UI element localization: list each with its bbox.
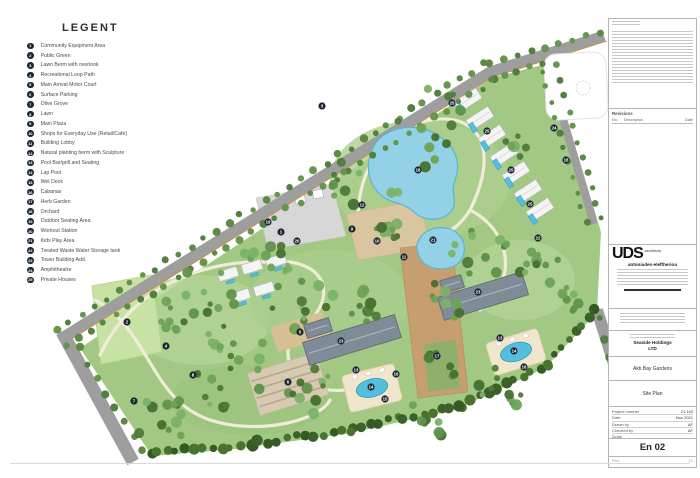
legend-label: Cabanas <box>41 189 62 195</box>
tree <box>456 99 461 104</box>
legend-title: LEGENT <box>62 22 177 34</box>
tree <box>549 100 554 105</box>
tree <box>424 85 432 93</box>
tree <box>532 260 540 268</box>
tree <box>200 258 208 266</box>
tree <box>349 311 355 317</box>
tree <box>494 375 500 381</box>
legend-label: Community Equipment Area <box>41 43 106 49</box>
legend-badge: 24 <box>27 267 34 274</box>
tree <box>201 289 207 295</box>
tree <box>329 180 338 189</box>
tree <box>597 30 604 37</box>
tree <box>395 118 402 125</box>
tree <box>518 392 523 397</box>
tree <box>308 432 318 442</box>
tree <box>500 55 508 63</box>
tree <box>157 420 167 430</box>
tree <box>152 447 161 456</box>
tree <box>440 298 450 308</box>
tree <box>512 68 520 76</box>
plan-marker: 25 <box>526 200 533 207</box>
tree <box>236 441 245 450</box>
legend-badge: 5 <box>27 82 34 89</box>
tree <box>331 193 337 199</box>
plan-marker: 5 <box>296 328 303 335</box>
tree <box>254 366 262 374</box>
tree <box>274 283 282 291</box>
tree <box>297 296 307 306</box>
legend-label: Private Houses <box>41 277 76 283</box>
tree <box>282 204 289 211</box>
tree <box>217 343 224 350</box>
tree <box>272 438 281 447</box>
legend-label: Tower Building Add. <box>41 257 87 263</box>
tree <box>168 305 173 310</box>
tree <box>179 443 189 453</box>
tree <box>529 47 536 54</box>
project-box: Akti Bay Gardens <box>608 356 697 380</box>
tree <box>138 446 146 454</box>
svg-text:25: 25 <box>485 129 490 134</box>
courtyard-garden <box>424 340 460 392</box>
tree <box>383 145 389 151</box>
tree <box>84 362 90 368</box>
tree <box>171 448 178 455</box>
tree <box>110 404 118 412</box>
legend-label: Olive Grove <box>41 101 68 107</box>
field-label: Date <box>612 415 620 420</box>
tree <box>573 298 583 308</box>
tree <box>567 110 573 116</box>
tree <box>240 249 250 259</box>
field-value: 21.140 <box>681 409 693 414</box>
pond <box>417 228 465 269</box>
tree <box>213 228 221 236</box>
tree <box>474 380 485 391</box>
tree <box>509 376 517 384</box>
tree <box>114 312 120 318</box>
tree <box>356 170 363 177</box>
legend-label: Orchard <box>41 209 60 215</box>
tree <box>229 299 239 309</box>
tree <box>357 160 363 166</box>
tree <box>589 304 599 314</box>
revisions-header: No. Description Date <box>612 118 693 124</box>
tree <box>298 278 305 285</box>
tree <box>295 393 305 403</box>
tree <box>349 147 354 152</box>
svg-text:15: 15 <box>383 397 388 402</box>
tree <box>285 265 293 273</box>
legend-item: 25Private Houses <box>27 275 177 285</box>
tree <box>197 443 206 452</box>
legend-item: 1Community Equipment Area <box>27 41 177 51</box>
svg-text:16: 16 <box>394 372 399 377</box>
legend-badge: 16 <box>27 189 34 196</box>
legend-item: 13Pool Bar/grill and Seating <box>27 158 177 168</box>
tree <box>76 343 84 351</box>
tree <box>424 142 434 152</box>
tree <box>234 355 244 365</box>
tree <box>172 325 179 332</box>
tree <box>424 352 435 363</box>
tree <box>124 303 130 309</box>
tree <box>447 120 457 130</box>
plan-marker: 21 <box>429 236 436 243</box>
tree <box>485 59 493 67</box>
print-value: 1:2 <box>688 459 693 465</box>
tree <box>293 431 301 439</box>
revisions-col-no: No. <box>612 118 624 122</box>
tree <box>225 444 232 451</box>
plan-marker: 19 <box>264 218 271 225</box>
svg-text:10: 10 <box>375 239 380 244</box>
tree <box>170 401 177 408</box>
fields-box: Project number21.140DateNov 2021Drawn by… <box>608 406 697 438</box>
tree <box>320 383 326 389</box>
legend-badge: 18 <box>27 208 34 215</box>
svg-text:18: 18 <box>416 168 421 173</box>
tree <box>431 296 438 303</box>
tree <box>331 172 337 178</box>
legend-item: 24Amphitheatre <box>27 265 177 275</box>
legend-item: 3Lawn Berm with overlook <box>27 61 177 71</box>
tree <box>558 344 565 351</box>
field-value: AF <box>688 422 693 427</box>
tree <box>363 318 370 325</box>
legend-item: 12Natural planting berm with Sculpture <box>27 148 177 158</box>
legend-badge: 25 <box>27 277 34 284</box>
plan-marker: 6 <box>284 378 291 385</box>
tree <box>455 105 465 115</box>
tree <box>394 188 403 197</box>
svg-text:12: 12 <box>360 203 365 208</box>
legend-label: Outdoor Seating Area <box>41 218 91 224</box>
legend-badge: 10 <box>27 130 34 137</box>
legend-item: 23Tower Building Add. <box>27 256 177 266</box>
tree <box>121 418 128 425</box>
tree <box>236 236 244 244</box>
legend-label: Shops for Everyday Use (Retail/Cafe) <box>41 131 128 137</box>
tree <box>150 291 158 299</box>
drawing-sheet: 3252525252418181221221110919201248756232… <box>0 0 700 478</box>
tree <box>448 250 456 258</box>
svg-text:25: 25 <box>509 168 514 173</box>
tree <box>265 241 276 252</box>
tree <box>369 152 376 159</box>
tree <box>337 158 346 167</box>
print-row: Print 1:2 <box>608 456 697 468</box>
tree <box>143 398 151 406</box>
svg-text:17: 17 <box>435 354 440 359</box>
tree <box>480 87 485 92</box>
plan-marker: 18 <box>414 166 421 173</box>
tree <box>454 308 464 318</box>
tree <box>313 280 324 291</box>
tree <box>208 338 217 347</box>
tree <box>462 257 473 268</box>
legend-badge: 8 <box>27 111 34 118</box>
tree <box>585 169 592 176</box>
tree <box>468 70 475 77</box>
tree <box>226 219 234 227</box>
legend-item: 14Lap Pool <box>27 168 177 178</box>
tree <box>431 280 439 288</box>
svg-text:23: 23 <box>476 290 481 295</box>
legend-badge: 23 <box>27 257 34 264</box>
tree <box>444 403 454 413</box>
tree <box>443 108 450 115</box>
tree <box>527 248 536 257</box>
tree <box>480 392 486 398</box>
revisions-col-date: Date <box>677 118 693 122</box>
legend-label: Main Arrival Motor Court <box>41 82 97 88</box>
tree <box>523 260 530 267</box>
tree <box>442 139 451 148</box>
plan-marker: 1 <box>277 228 284 235</box>
plan-marker: 25 <box>483 127 490 134</box>
legend-badge: 2 <box>27 52 34 59</box>
tree <box>501 72 508 79</box>
svg-text:21: 21 <box>431 238 436 243</box>
legend-label: Surface Parking <box>41 92 78 98</box>
legend-label: Pool Bar/grill and Seating <box>41 160 100 166</box>
drawing-title: Site Plan <box>642 391 662 397</box>
plan-marker: 14 <box>510 347 517 354</box>
tree <box>517 153 524 160</box>
tree <box>228 366 234 372</box>
tree <box>515 53 521 59</box>
plan-marker: 25 <box>448 99 455 106</box>
tree <box>230 340 237 347</box>
print-label: Print <box>612 459 619 465</box>
tree <box>189 244 196 251</box>
tree <box>248 247 259 258</box>
tree <box>418 99 425 106</box>
tree <box>540 70 545 75</box>
plan-marker: 9 <box>348 225 355 232</box>
plan-marker: 18 <box>562 156 569 163</box>
svg-text:18: 18 <box>564 158 569 163</box>
tree <box>522 144 530 152</box>
legend-item: 9Main Plaza <box>27 119 177 129</box>
legend-list: 1Community Equipment Area2Public Green3L… <box>27 41 177 285</box>
tree <box>208 301 213 306</box>
tree <box>407 104 415 112</box>
svg-text:23: 23 <box>339 339 344 344</box>
plan-marker: 4 <box>162 342 169 349</box>
tree <box>228 353 235 360</box>
plan-marker: 20 <box>293 237 300 244</box>
tree <box>202 394 209 401</box>
svg-text:13: 13 <box>498 336 503 341</box>
tree <box>217 385 223 391</box>
legend-item: 5Main Arrival Motor Court <box>27 80 177 90</box>
tree <box>307 190 313 196</box>
tree <box>383 122 389 128</box>
plan-marker: 23 <box>337 337 344 344</box>
plan-marker: 15 <box>381 395 388 402</box>
legend-label: Natural planting berm with Sculpture <box>41 150 125 156</box>
tree <box>337 426 346 435</box>
tree <box>203 308 212 317</box>
tree <box>465 395 476 406</box>
plan-marker: 12 <box>358 201 365 208</box>
legend-item: 16Cabanas <box>27 187 177 197</box>
tree <box>92 304 98 310</box>
plan-marker: 3 <box>318 102 325 109</box>
tree <box>286 184 293 191</box>
tree <box>200 235 205 240</box>
plan-marker: 23 <box>474 288 481 295</box>
tree <box>222 244 230 252</box>
tree <box>100 319 106 325</box>
svg-text:14: 14 <box>369 385 374 390</box>
plan-marker: 10 <box>373 237 380 244</box>
tree <box>65 320 71 326</box>
legend-badge: 9 <box>27 121 34 128</box>
tree <box>557 289 567 299</box>
legend-label: Lap Pool <box>41 170 61 176</box>
tree <box>334 150 341 157</box>
tree <box>555 257 561 263</box>
tree <box>261 250 271 260</box>
tree <box>356 423 366 433</box>
tree <box>161 323 171 333</box>
svg-text:20: 20 <box>295 239 300 244</box>
tree <box>116 287 123 294</box>
legend-item: 22Treated Waste Water Storage tank <box>27 246 177 256</box>
tree <box>560 92 567 99</box>
tree <box>298 175 304 181</box>
plan-marker: 7 <box>130 397 137 404</box>
tree <box>210 445 217 452</box>
tree <box>468 232 476 240</box>
legend-item: 21Kids Play Area <box>27 236 177 246</box>
legend-item: 6Surface Parking <box>27 90 177 100</box>
legend-label: Amphitheatre <box>41 267 72 273</box>
tree <box>376 222 387 233</box>
tree <box>389 227 395 233</box>
tree <box>218 270 225 277</box>
revisions-col-desc: Description <box>624 118 677 122</box>
tree <box>575 191 580 196</box>
tree <box>171 417 182 428</box>
plan-marker: 22 <box>534 234 541 241</box>
tree <box>541 44 549 52</box>
svg-text:25: 25 <box>528 202 533 207</box>
legend-label: Building Lobby <box>41 140 75 146</box>
svg-text:22: 22 <box>536 236 541 241</box>
tree <box>254 384 265 395</box>
tree <box>584 219 591 226</box>
plan-marker: 25 <box>507 166 514 173</box>
tree <box>435 418 443 426</box>
tree <box>320 432 328 440</box>
legend-item: 8Lawn <box>27 109 177 119</box>
legend-item: 10Shops for Everyday Use (Retail/Cafe) <box>27 129 177 139</box>
tree <box>444 92 452 100</box>
svg-text:11: 11 <box>402 255 407 260</box>
drawing-box: Site Plan <box>608 380 697 406</box>
tree <box>409 401 417 409</box>
tree <box>453 400 464 411</box>
uds-logo: UDS <box>612 247 643 261</box>
legend-label: Recreational Loop Path <box>41 72 95 78</box>
tree <box>236 211 242 217</box>
tree <box>556 130 563 137</box>
tree <box>440 286 451 297</box>
tree <box>310 395 321 406</box>
tree <box>357 287 368 298</box>
client-name-2: LTD <box>612 346 693 352</box>
tree <box>189 308 199 318</box>
legend-panel: LEGENT 1Community Equipment Area2Public … <box>27 22 177 285</box>
tree <box>325 374 330 379</box>
tree <box>330 428 339 437</box>
tree <box>599 215 604 220</box>
tree <box>569 38 575 44</box>
logo-box: UDS architects antoniades-eleftheriou <box>608 244 697 308</box>
field-value: Nov 2021 <box>676 415 693 420</box>
firm-contact-bar <box>624 289 681 292</box>
tree <box>526 63 532 69</box>
tree <box>491 267 502 278</box>
tree <box>393 140 398 145</box>
tree <box>181 291 190 300</box>
legend-badge: 7 <box>27 101 34 108</box>
tree <box>372 312 381 321</box>
svg-text:25: 25 <box>450 101 455 106</box>
tree <box>271 215 277 221</box>
notes-text-lines <box>612 31 693 83</box>
field-label: Checked by <box>612 428 633 433</box>
tree <box>417 416 426 425</box>
tree <box>434 427 445 438</box>
tree <box>482 255 488 261</box>
legend-badge: 6 <box>27 91 34 98</box>
fields-list: Project number21.140DateNov 2021Drawn by… <box>612 409 693 440</box>
tree <box>207 375 216 384</box>
tree <box>63 342 70 349</box>
field-label: Drawn by <box>612 422 629 427</box>
tree <box>296 379 304 387</box>
tree <box>340 168 347 175</box>
tree <box>416 123 426 133</box>
tree <box>431 155 440 164</box>
tree <box>137 296 144 303</box>
tree <box>391 234 398 241</box>
plan-marker: 16 <box>392 370 399 377</box>
tree <box>555 40 562 47</box>
tree <box>162 297 172 307</box>
tree <box>566 336 573 343</box>
tree <box>177 432 185 440</box>
tree <box>75 334 83 342</box>
tree <box>251 435 262 446</box>
tree <box>583 32 590 39</box>
tree <box>590 185 595 190</box>
plan-marker: 24 <box>550 124 557 131</box>
tree <box>409 413 417 421</box>
empty-plot <box>543 51 608 120</box>
tree <box>451 298 462 309</box>
legend-item: 17Herb Garden <box>27 197 177 207</box>
tree <box>250 207 255 212</box>
tree <box>592 200 599 207</box>
plan-marker: 16 <box>520 363 527 370</box>
